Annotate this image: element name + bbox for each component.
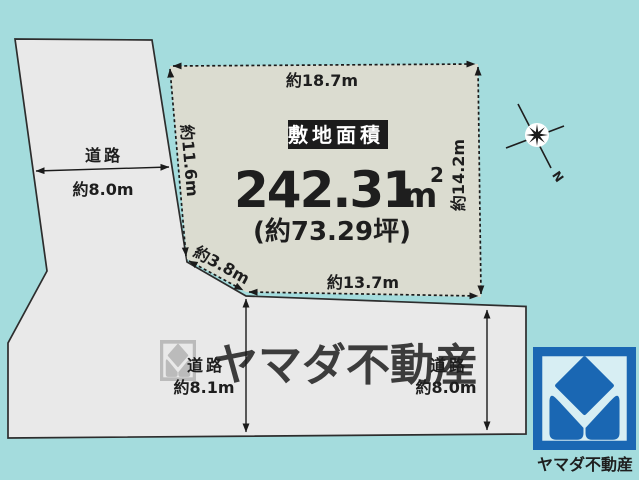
road-bottom-right-name: 道路 — [430, 356, 468, 375]
compass-star — [526, 124, 548, 146]
dim-bottom: 約13.7m — [327, 273, 399, 292]
dim-top: 約18.7m — [286, 71, 358, 90]
road-bottom-right-width: 約8.0m — [415, 378, 476, 397]
land-plot-diagram: ヤマダ不動産 道路 約8.0m 道路 約8.1m 道路 約8.0m 約18.7m… — [0, 0, 639, 480]
area-unit-exponent: 2 — [430, 163, 444, 187]
area-caption: 敷地面積 — [288, 123, 384, 147]
road-bottom-left-name: 道路 — [187, 356, 225, 375]
plot-map-canvas: ヤマダ不動産 道路 約8.0m 道路 約8.1m 道路 約8.0m 約18.7m… — [0, 0, 639, 480]
land-parcel: 約18.7m 約14.2m 約11.6m 約3.8m 約13.7m 敷地面積 2… — [170, 64, 481, 297]
road-left-width: 約8.0m — [72, 180, 133, 199]
area-value: 242.31 — [234, 161, 415, 219]
area-tsubo: (約73.29坪) — [253, 216, 411, 247]
dim-right: 約14.2m — [449, 139, 468, 211]
logo-company-name: ヤマダ不動産 — [537, 455, 633, 474]
company-logo: ヤマダ不動産 — [534, 348, 635, 474]
road-bottom-left-width: 約8.1m — [173, 378, 234, 397]
road-left-name: 道路 — [85, 146, 123, 165]
